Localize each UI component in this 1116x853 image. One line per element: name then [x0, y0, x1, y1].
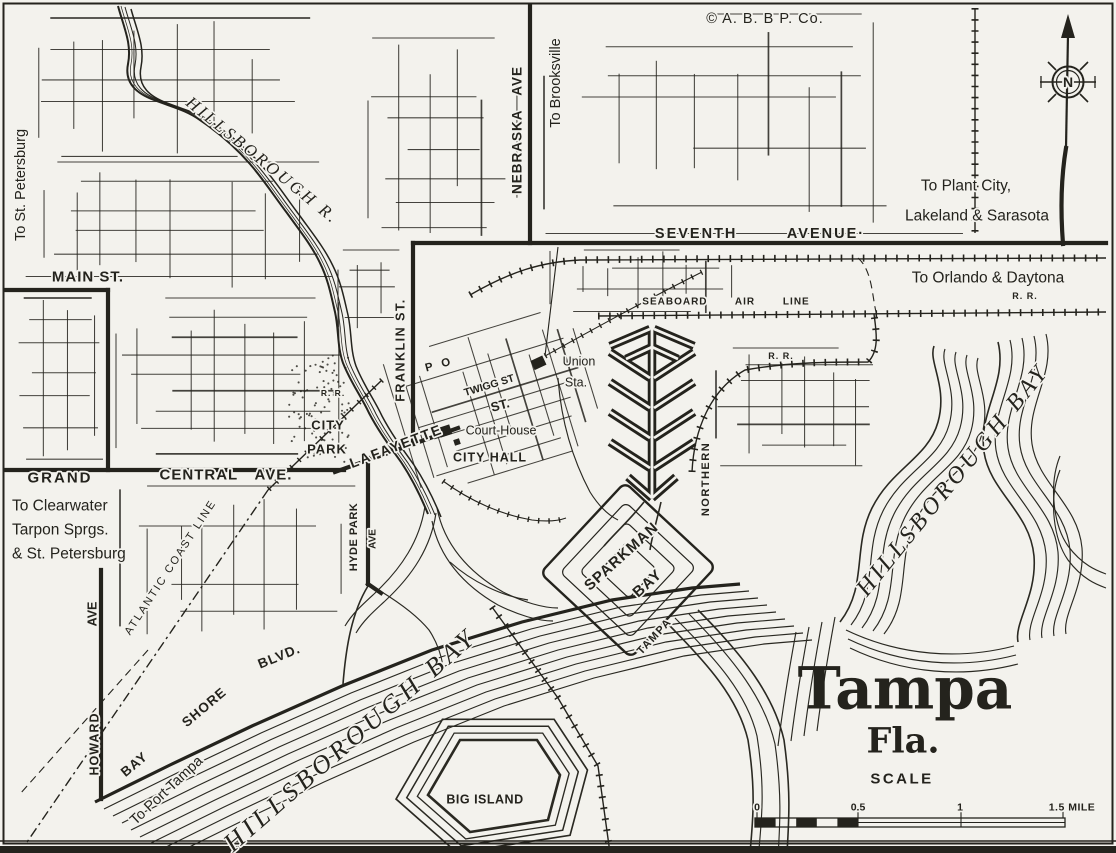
tampa-vintage-map: © A. B. B P. Co. To St. Petersburg HILLS…	[0, 0, 1116, 853]
compass-north-letter: N	[1063, 74, 1073, 90]
label-hyde-park-ave: AVE	[368, 529, 379, 549]
label-seventh-avenue: SEVENTH AVENUE·	[655, 226, 865, 242]
label-lafayette: LAFAYETTE	[347, 421, 445, 471]
label-howard: HOWARD	[87, 713, 101, 776]
map-canvas: © A. B. B P. Co. To St. Petersburg HILLS…	[0, 0, 1116, 853]
labels: © A. B. B P. Co. To St. Petersburg HILLS…	[12, 11, 1095, 853]
label-rr-city-park: R. R.	[321, 388, 345, 398]
label-bay-word: BAY	[118, 749, 151, 780]
scale-heading: SCALE	[870, 770, 933, 787]
label-rr-loop: R. R.	[768, 351, 794, 361]
label-to-brooksville: To Brooksville	[548, 38, 564, 127]
label-city-hall: CITY HALL	[453, 450, 527, 464]
label-northern-rr: NORTHERN	[700, 442, 712, 516]
label-main-st: MAIN ST.	[52, 268, 124, 285]
label-seaboard-air-line: SEABOARD AIR LINE	[642, 297, 809, 308]
label-to-plant-city-1: To Plant City,	[921, 177, 1011, 194]
label-union-2: Sta.	[565, 375, 587, 389]
scale-tick-0: 0	[754, 802, 760, 814]
street-grid	[19, 14, 963, 634]
scale-tick-half: 0.5	[851, 802, 866, 814]
label-to-clearwater-2: Tarpon Sprgs.	[12, 521, 109, 538]
scale-tick-1: 1	[957, 802, 963, 814]
label-big-island: BIG ISLAND	[446, 792, 523, 806]
city-hall-marker	[453, 438, 461, 446]
label-court-house: Court-House	[466, 423, 537, 437]
scale-tick-end: 1.5 MILE	[1049, 802, 1096, 814]
big-island-contours	[396, 719, 587, 852]
label-central-ave: CENTRAL AVE.	[160, 466, 293, 483]
map-title-state: Fla.	[866, 720, 939, 761]
label-post-office: P O	[424, 355, 455, 374]
label-city-park-1: CITY	[311, 418, 345, 433]
label-twigg-st2: ST.	[489, 395, 511, 414]
label-to-plant-city-2: Lakeland & Sarasota	[905, 207, 1049, 224]
label-hillsborough-river: HILLSBOROUGH R.	[182, 92, 343, 228]
label-city-park-2: PARK	[307, 442, 347, 457]
label-ave-west: AVE	[85, 602, 99, 627]
label-blvd-word: BLVD.	[256, 641, 303, 672]
label-to-st-petersburg: To St. Petersburg	[13, 129, 29, 241]
label-hyde-park: HYDE PARK	[348, 503, 360, 571]
label-to-orlando-daytona: To Orlando & Daytona	[912, 269, 1065, 286]
sparkman-bay-spiral	[540, 482, 715, 657]
label-union-1: Union	[563, 354, 596, 368]
map-title-city: Tampa	[798, 654, 1013, 722]
label-hillsborough-bay-east: HILLSBOROUGH BAY	[851, 358, 1055, 602]
port-slips-feather	[610, 329, 694, 498]
label-atlantic-coast-line: ATLANTIC COAST LINE	[122, 498, 218, 638]
label-to-clearwater-1: To Clearwater	[12, 497, 108, 514]
label-franklin-st: FRANKLIN ST.	[393, 298, 407, 401]
attribution: © A. B. B P. Co.	[706, 11, 824, 27]
railroad-lines	[20, 8, 1106, 853]
hillsborough-bay-east-contours	[840, 334, 1106, 672]
label-rr-orlando: R. R.	[1012, 291, 1038, 301]
north-arrow	[1061, 14, 1075, 38]
label-grand: GRAND	[28, 469, 93, 486]
label-nebraska-ave: NEBRASKA AVE	[510, 66, 525, 194]
label-shore-word: SHORE	[179, 684, 229, 730]
scale-bar	[755, 811, 1065, 827]
label-to-clearwater-3: & St. Petersburg	[12, 545, 126, 562]
